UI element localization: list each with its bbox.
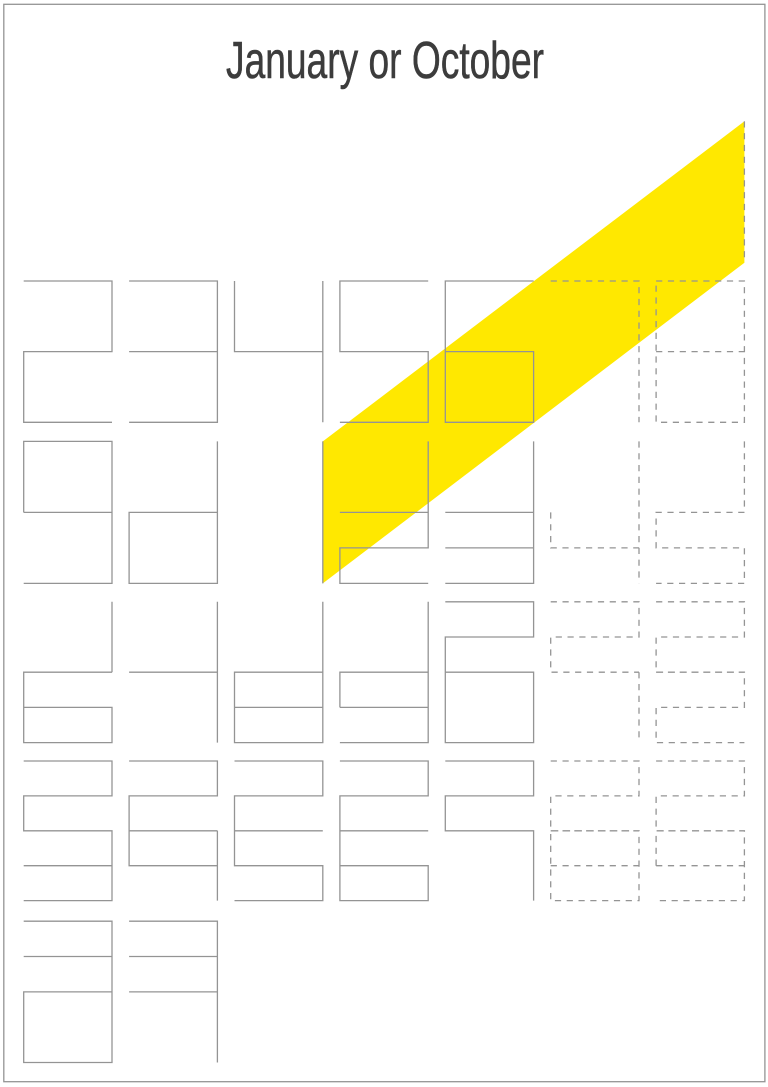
svg-text:January or October: January or October [226,32,544,90]
